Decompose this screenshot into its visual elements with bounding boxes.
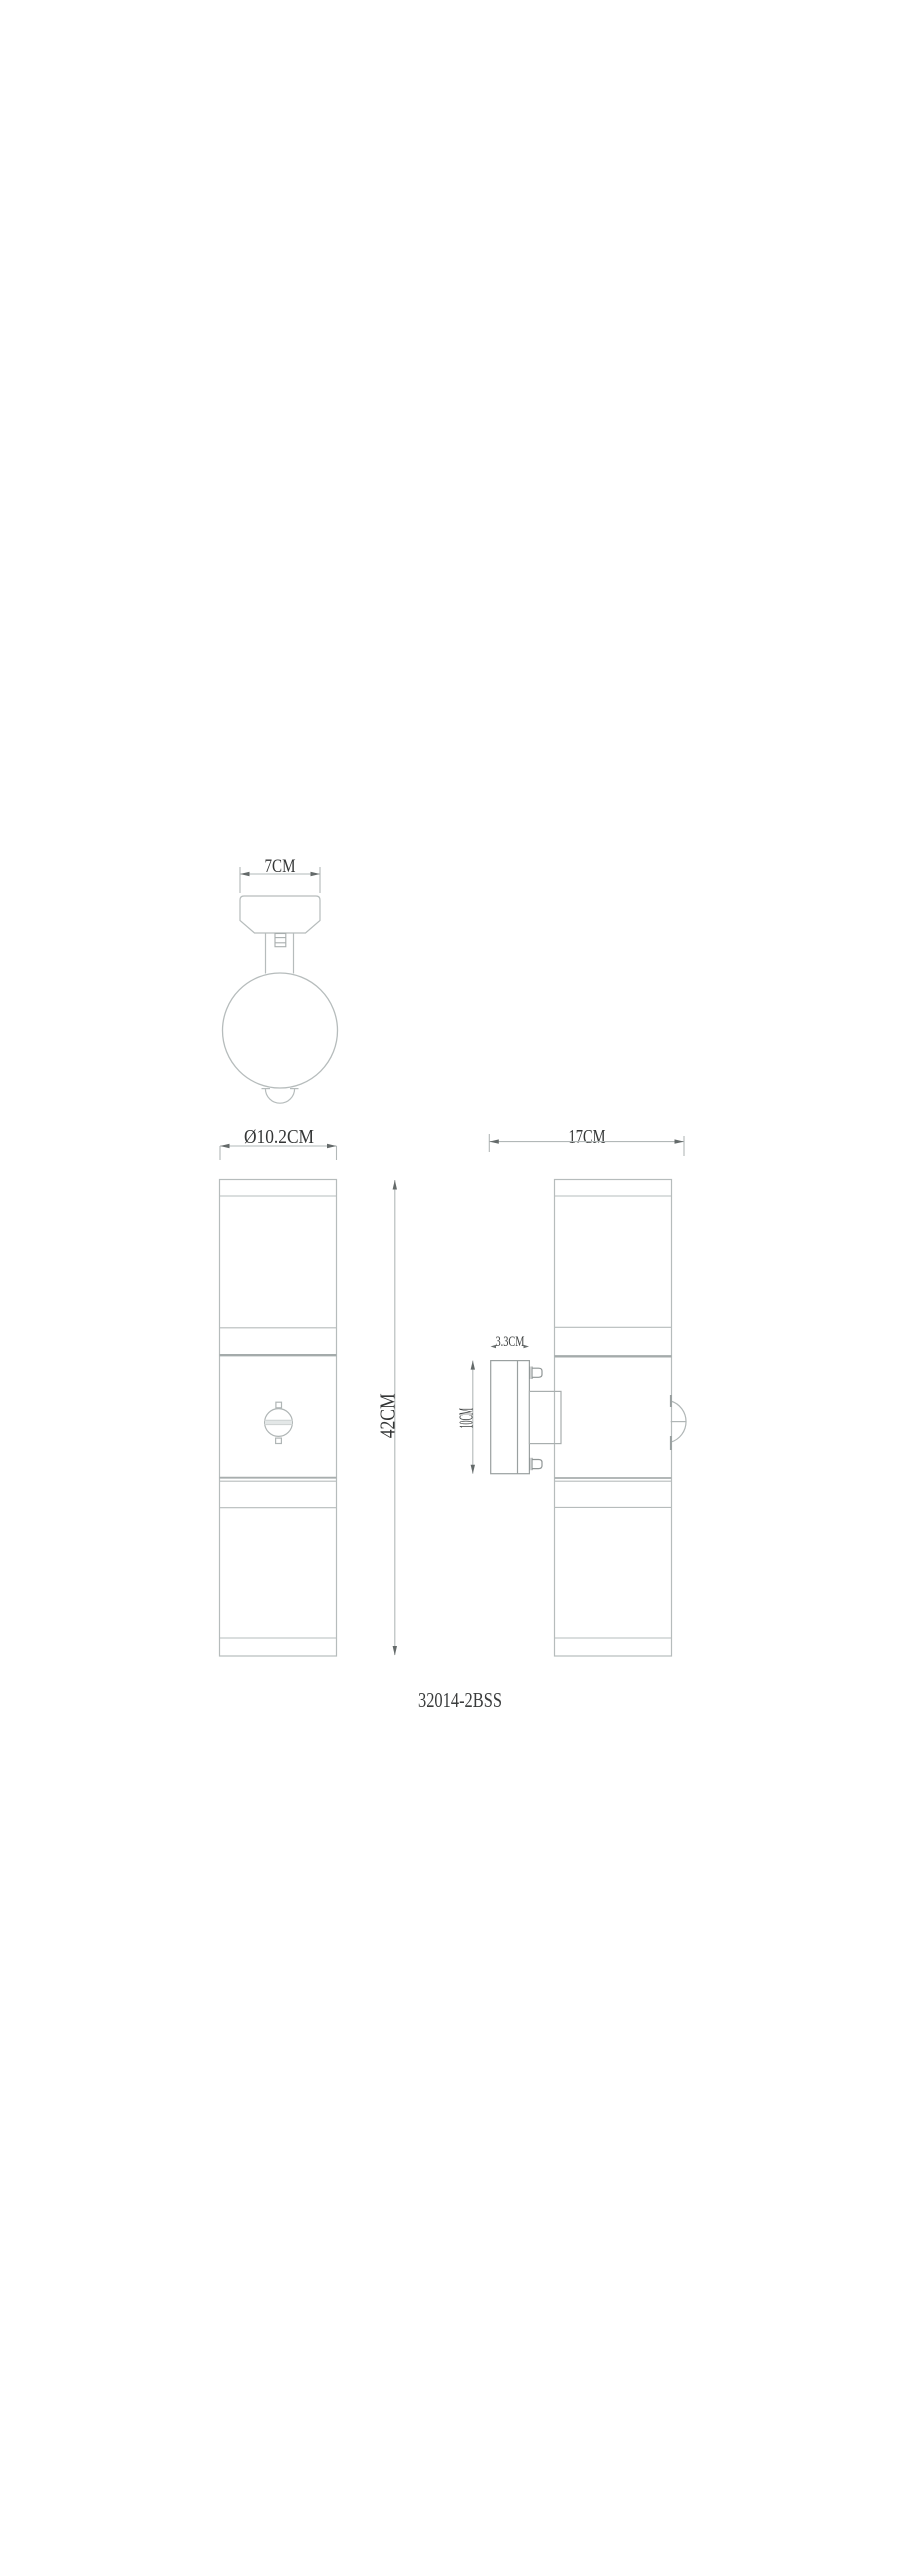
svg-text:10CM: 10CM <box>457 1408 478 1429</box>
svg-text:Ø10.2CM: Ø10.2CM <box>244 1126 314 1148</box>
svg-text:32014-2BSS: 32014-2BSS <box>418 1688 502 1712</box>
svg-text:17CM: 17CM <box>569 1126 606 1148</box>
svg-text:3.3CM: 3.3CM <box>496 1334 525 1350</box>
svg-text:42CM: 42CM <box>375 1393 399 1438</box>
